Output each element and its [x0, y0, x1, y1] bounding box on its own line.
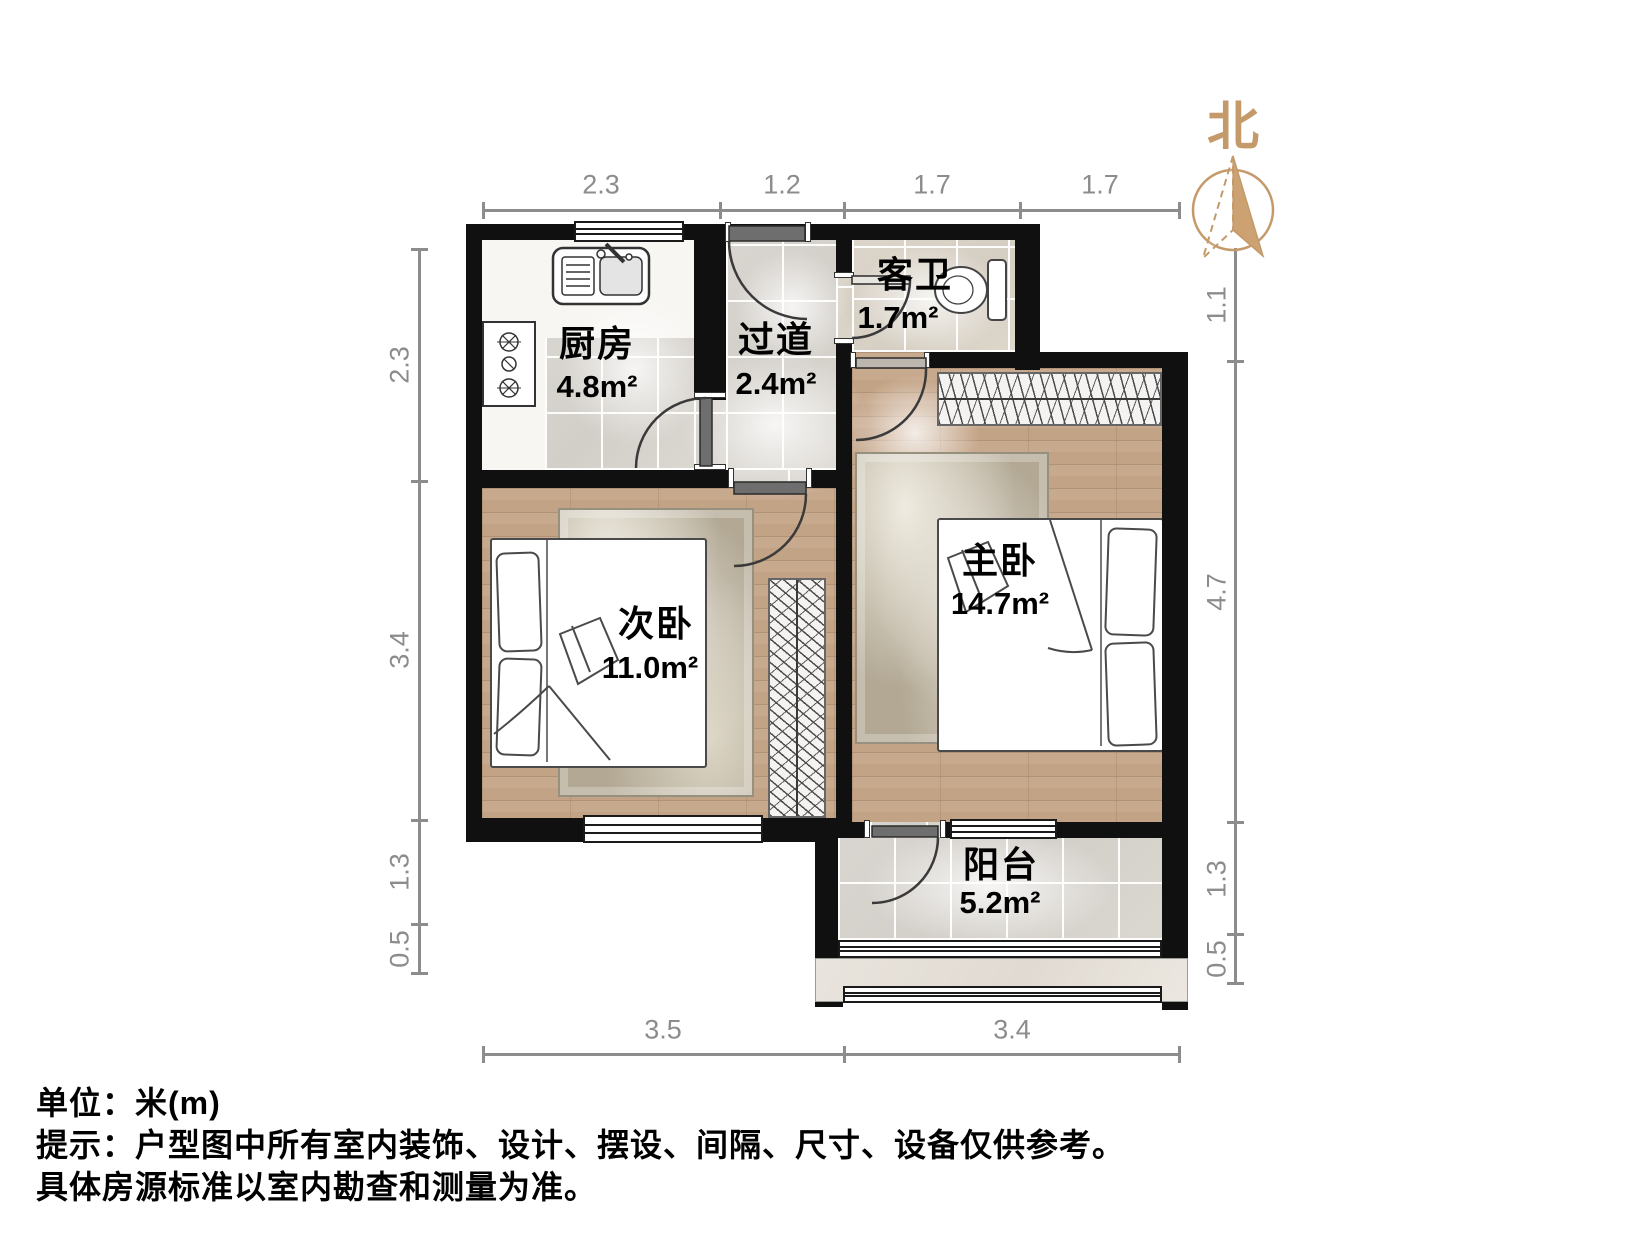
- shelf-unit: [768, 578, 826, 818]
- wall-segment: [466, 818, 583, 842]
- dim-label: 4.7: [1202, 573, 1233, 611]
- room-area: 2.4m²: [736, 366, 817, 402]
- room-label: 过道: [738, 311, 814, 363]
- dim-line-left: [418, 249, 421, 975]
- wall-segment: [1015, 224, 1040, 370]
- wardrobe: [937, 372, 1162, 426]
- dim-label: 2.3: [582, 170, 620, 201]
- window-symbol: [838, 940, 1162, 958]
- room-area: 14.7m²: [951, 586, 1049, 622]
- room-area: 5.2m²: [960, 885, 1041, 921]
- room-label: 厨房: [559, 315, 635, 367]
- door-jamb: [924, 352, 930, 368]
- dim-tick: [1227, 821, 1244, 824]
- dim-tick: [1178, 1046, 1181, 1063]
- dim-line-top: [483, 209, 1180, 212]
- room-label: 主卧: [962, 532, 1038, 584]
- dim-label: 2.3: [385, 346, 416, 384]
- balcony-door-threshold: [870, 822, 940, 838]
- dim-tick: [719, 202, 722, 219]
- dim-label: 1.3: [385, 853, 416, 891]
- wall-segment: [808, 470, 836, 488]
- door-jamb: [834, 338, 854, 344]
- wall-segment: [466, 224, 482, 842]
- room-area: 1.7m²: [858, 300, 939, 336]
- footer-unit: 单位：米(m): [36, 1078, 221, 1124]
- dim-label: 1.2: [763, 170, 801, 201]
- dim-tick: [843, 202, 846, 219]
- room-area: 11.0m²: [602, 650, 699, 686]
- dim-line-bottom: [483, 1053, 1180, 1056]
- pillow: [495, 551, 542, 652]
- kitchen-door-threshold: [694, 398, 726, 470]
- window-symbol: [574, 221, 684, 242]
- footer-hint-1: 提示：户型图中所有室内装饰、设计、摆设、间隔、尺寸、设备仅供参考。: [36, 1120, 1125, 1166]
- dim-line-right: [1234, 248, 1237, 985]
- dim-label: 1.7: [913, 170, 951, 201]
- wall-segment: [466, 224, 1040, 240]
- pillow: [495, 657, 542, 756]
- dim-tick: [1227, 360, 1244, 363]
- door-jamb: [940, 820, 946, 838]
- door-jamb: [805, 222, 811, 242]
- dim-tick: [411, 819, 428, 822]
- window-symbol: [583, 815, 763, 843]
- bath-door-threshold: [836, 277, 852, 340]
- dim-tick: [482, 1046, 485, 1063]
- door-jamb: [728, 468, 734, 488]
- dim-label: 3.4: [993, 1015, 1031, 1046]
- pillow: [1104, 641, 1158, 747]
- door-jamb: [694, 392, 726, 398]
- dim-label: 1.1: [1202, 286, 1233, 324]
- wall-segment: [836, 370, 852, 822]
- window-symbol: [843, 986, 1162, 1003]
- dim-tick: [1227, 933, 1244, 936]
- second-bedroom-door-threshold: [732, 470, 808, 488]
- door-jamb: [864, 820, 870, 838]
- wall-segment: [694, 240, 726, 400]
- dim-tick: [1019, 202, 1022, 219]
- dim-tick: [411, 972, 428, 975]
- dim-label: 1.3: [1202, 860, 1233, 898]
- door-jamb: [806, 468, 812, 488]
- north-label: 北: [1207, 85, 1259, 160]
- footer-hint-2: 具体房源标准以室内勘查和测量为准。: [36, 1162, 597, 1208]
- dim-label: 1.7: [1081, 170, 1119, 201]
- dim-tick: [843, 1046, 846, 1063]
- dim-label: 0.5: [385, 930, 416, 968]
- door-jamb: [725, 222, 731, 242]
- bed-headboard-line: [546, 540, 548, 762]
- dim-tick: [482, 202, 485, 219]
- room-label: 客卫: [877, 246, 953, 298]
- dim-tick: [1227, 982, 1244, 985]
- dim-tick: [411, 923, 428, 926]
- floor-plan-page: 厨房 4.8m² 过道 2.4m² 客卫 1.7m² 主卧 14.7m² 次卧 …: [0, 0, 1652, 1239]
- room-area: 4.8m²: [557, 369, 638, 405]
- door-jamb: [834, 272, 854, 278]
- wall-segment: [466, 470, 732, 488]
- dim-label: 0.5: [1202, 940, 1233, 978]
- dim-label: 3.5: [644, 1015, 682, 1046]
- dim-tick: [411, 248, 428, 251]
- door-jamb: [850, 352, 856, 368]
- room-label: 阳台: [963, 836, 1039, 888]
- wall-segment: [815, 838, 838, 943]
- room-label: 次卧: [618, 595, 694, 647]
- wall-segment: [1057, 822, 1162, 838]
- wall-segment: [924, 352, 1188, 368]
- master-door-threshold: [852, 352, 924, 368]
- dim-tick: [1178, 202, 1181, 219]
- door-jamb: [694, 464, 726, 470]
- dim-tick: [411, 480, 428, 483]
- dim-label: 3.4: [385, 631, 416, 669]
- wall-segment: [1162, 352, 1188, 1010]
- bed-headboard-line: [1100, 520, 1102, 746]
- pillow: [1104, 527, 1158, 637]
